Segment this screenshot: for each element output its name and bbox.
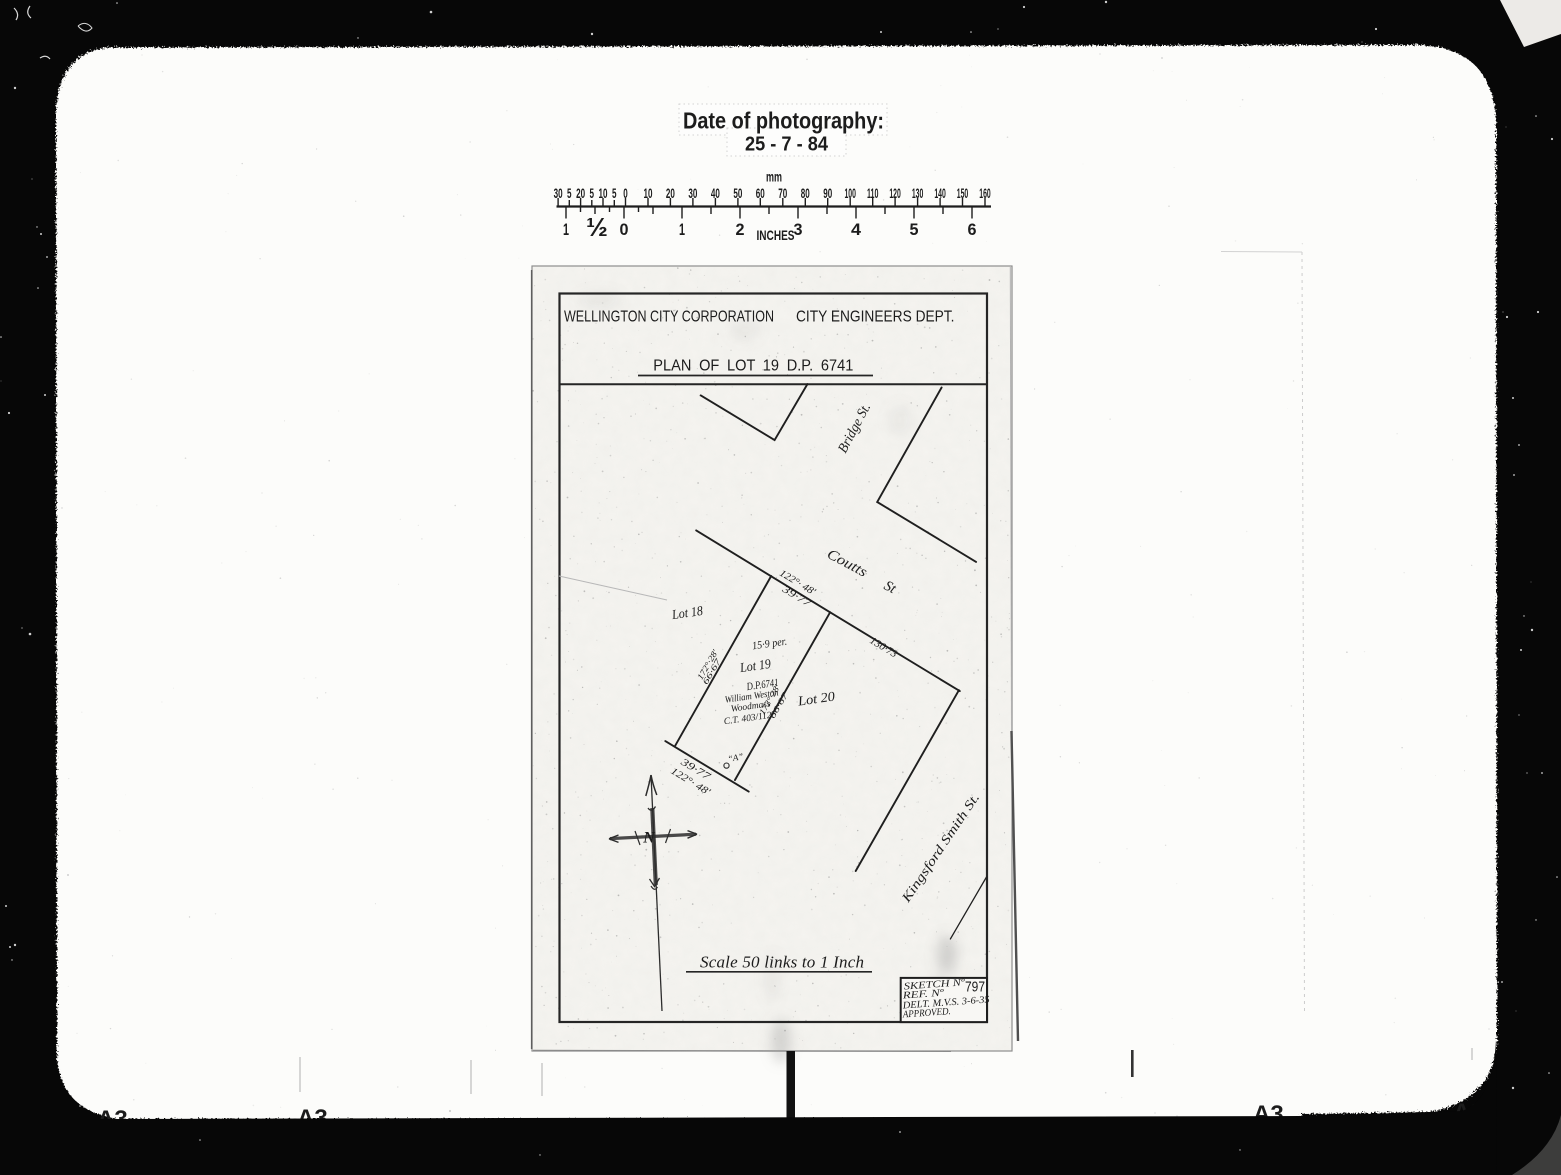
svg-text:80: 80 <box>801 186 810 201</box>
svg-text:Scale 50 links to 1 Inch: Scale 50 links to 1 Inch <box>700 953 864 972</box>
svg-text:1: 1 <box>563 220 569 239</box>
svg-text:140: 140 <box>934 186 946 201</box>
svg-text:½: ½ <box>586 212 608 242</box>
svg-text:40: 40 <box>711 186 720 201</box>
svg-text:6: 6 <box>968 220 977 239</box>
svg-text:0: 0 <box>620 220 629 239</box>
svg-text:30: 30 <box>688 186 697 201</box>
svg-text:N: N <box>642 830 656 847</box>
svg-text:2: 2 <box>736 220 745 239</box>
svg-text:Date of photography:: Date of photography: <box>683 107 884 133</box>
svg-text:150: 150 <box>957 186 969 201</box>
svg-text:WELLINGTON CITY CORPORATION: WELLINGTON CITY CORPORATION <box>564 309 774 326</box>
svg-text:20: 20 <box>576 186 585 201</box>
svg-text:10: 10 <box>599 186 608 201</box>
svg-text:797: 797 <box>965 979 985 996</box>
svg-text:5: 5 <box>612 186 617 201</box>
svg-text:5: 5 <box>567 186 572 201</box>
svg-text:mm: mm <box>766 169 782 185</box>
svg-text:130: 130 <box>912 186 924 201</box>
svg-text:INCHES: INCHES <box>757 227 795 243</box>
svg-text:1: 1 <box>679 220 685 239</box>
svg-text:160: 160 <box>979 186 991 201</box>
svg-text:100: 100 <box>844 186 856 201</box>
svg-text:30: 30 <box>554 186 563 201</box>
svg-text:3: 3 <box>794 220 803 239</box>
svg-text:4: 4 <box>851 220 862 239</box>
svg-text:90: 90 <box>823 186 832 201</box>
svg-text:5: 5 <box>910 220 919 239</box>
svg-text:60: 60 <box>756 186 765 201</box>
svg-text:70: 70 <box>778 186 787 201</box>
svg-text:50: 50 <box>733 186 742 201</box>
svg-text:CITY ENGINEERS DEPT.: CITY ENGINEERS DEPT. <box>796 309 955 326</box>
svg-text:PLAN OF LOT 19 D.P. 6741: PLAN OF LOT 19 D.P. 6741 <box>653 358 853 375</box>
svg-text:110: 110 <box>867 186 879 201</box>
svg-text:5: 5 <box>590 186 595 201</box>
svg-text:25 - 7 - 84: 25 - 7 - 84 <box>745 134 829 156</box>
svg-text:120: 120 <box>889 186 901 201</box>
svg-text:20: 20 <box>666 186 675 201</box>
svg-text:10: 10 <box>644 186 653 201</box>
svg-text:0: 0 <box>623 186 628 201</box>
